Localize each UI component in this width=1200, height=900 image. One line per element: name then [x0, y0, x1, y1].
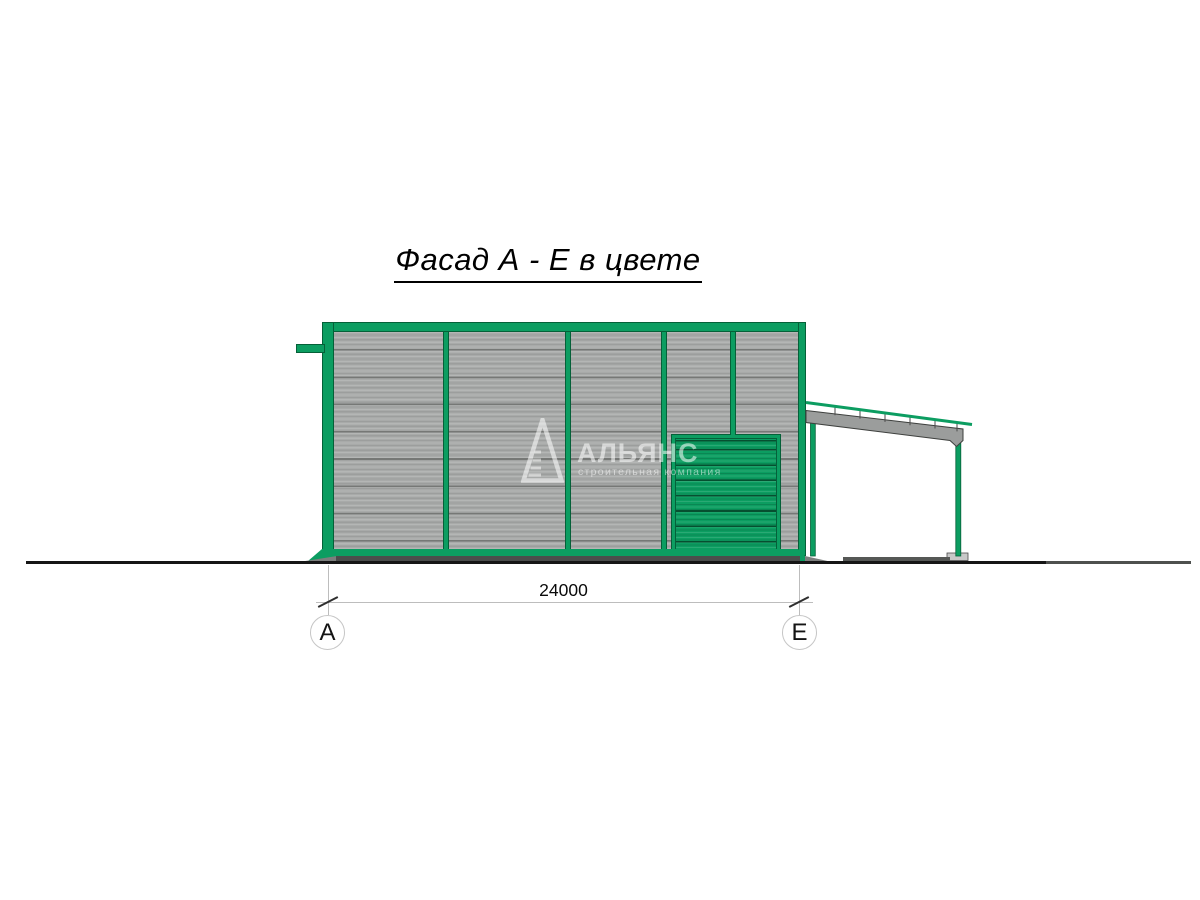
facade-mullion-4: [730, 332, 736, 435]
ground-line-right: [1046, 561, 1191, 563]
extension-line-e: [799, 565, 800, 615]
axis-label-e: Е: [791, 619, 807, 647]
facade-mullion-3: [661, 332, 667, 550]
facade-drawing-canvas: Фасад А - Е в цвете: [0, 0, 1200, 900]
dimension-line: [316, 602, 813, 603]
axis-marker-a: А: [310, 615, 345, 650]
canopy-structure: [795, 393, 980, 565]
canopy-post-outer: [956, 434, 961, 556]
roof-parapet-band: [322, 322, 806, 332]
axis-marker-e: Е: [782, 615, 817, 650]
axis-label-a: А: [319, 619, 335, 647]
sectional-gate: [671, 434, 781, 557]
gutter-outlet: [296, 344, 325, 353]
corner-column-left: [322, 322, 334, 556]
facade-mullion-2: [565, 332, 571, 550]
dimension-value: 24000: [328, 580, 799, 601]
canopy-post-wall: [811, 420, 816, 556]
drawing-title: Фасад А - Е в цвете: [394, 242, 702, 283]
facade-mullion-1: [443, 332, 449, 550]
ground-line: [26, 561, 1047, 564]
gate-panels: [676, 440, 776, 556]
